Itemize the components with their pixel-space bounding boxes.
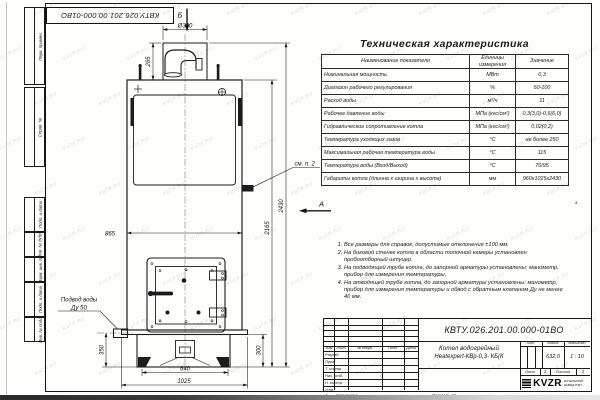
tb-row-nkontr: Н. контр. [325, 379, 348, 386]
tb-sheets-value: 2 [576, 368, 590, 375]
tb-lit-label: Лит. [520, 341, 542, 346]
table-cell: Расход воды [322, 95, 470, 108]
tb-scale-value: 1 : 10 [564, 346, 590, 368]
table-cell: 115 [516, 147, 569, 160]
tb-row-nachotd: Нач. отд. [325, 372, 348, 379]
callout-water-supply-2: Ду 50 [70, 306, 87, 312]
table-cell: 11 [516, 95, 569, 108]
kvzr-logo-text: KVZR [533, 378, 562, 389]
tb-row-prov: Пров. [325, 358, 348, 365]
dim-body-height: 2165 [265, 221, 271, 236]
table-cell: мм [470, 173, 516, 186]
table-cell: 0,3(3,0)-0,6(6,0) [516, 108, 569, 121]
kvzr-logo-subtext-2: ЗАВОД РЭП [564, 384, 590, 388]
table-cell: Рабочее давление воды [322, 108, 470, 121]
table-cell: Диапазон рабочего регулирования [322, 82, 470, 95]
kvzr-logo-icon [522, 379, 531, 388]
table-cell: 0,02(0,2) [516, 121, 569, 134]
tb-sheet-value: 1 [540, 368, 550, 375]
table-cell: Гидравлическое сопротивление котла [322, 121, 470, 134]
table-cell: Номинальная мощность [322, 69, 470, 82]
table-cell: м³/ч [470, 95, 516, 108]
table-cell: 50-100 [516, 82, 569, 95]
tb-product-name-2: Heatexpert-КВр-0,3- КБ(К [420, 353, 518, 361]
table-cell: Максимальная рабочая температура воды [322, 147, 470, 160]
tb-hdr-podp: Подп. [382, 346, 404, 351]
dim-chimney-diameter: Ø300 [177, 24, 193, 30]
table-cell: Габариты котла (длинна х ширина х высота… [322, 173, 470, 186]
table-cell: 0,3 [516, 69, 569, 82]
table-header: Единицы измерения [470, 55, 516, 69]
tb-row-razrab: Разраб. [325, 351, 348, 358]
table-row: Максимальная рабочая температура воды°С1… [322, 147, 569, 160]
table-cell: °С [470, 160, 516, 173]
dim-body-width: 865 [105, 231, 116, 237]
view-arrows: Б А [178, 9, 332, 214]
tech-table: Наименование показателя Единицы измерени… [321, 54, 569, 186]
dim-chimney-height: 265 [146, 56, 152, 68]
callout-see-note: см. п. 2 [295, 162, 316, 168]
scan-shadow-band [0, 395, 600, 400]
tb-hdr-ndokum: № докум. [348, 346, 382, 351]
tb-sheets-label: Листов [550, 368, 576, 375]
tech-table-title: Техническая характеристика [321, 38, 568, 50]
dim-base-width: 640 [180, 367, 191, 373]
table-cell: °С [470, 134, 516, 147]
table-cell: МПа (кгс/см²) [470, 108, 516, 121]
table-row: Температура уходящих газов°Сне более 250 [322, 134, 569, 147]
tb-product-name-1: Котел водогрейный [420, 345, 518, 353]
notes-list: Все размеры для справок, допустимые откл… [334, 242, 566, 302]
table-row: Расход водым³/ч11 [322, 95, 569, 108]
view-b-label: Б [178, 11, 183, 20]
table-cell: Температура воды (Вход/Выход) [322, 160, 470, 173]
table-row: Габариты котла (длинна х ширина х высота… [322, 173, 569, 186]
table-row: Рабочее давление водыМПа (кгс/см²)0,3(3,… [322, 108, 569, 121]
tb-row-tkontr: Т. контр. [325, 365, 348, 372]
table-cell: Температура уходящих газов [322, 134, 470, 147]
tech-characteristics: Техническая характеристика Наименование … [321, 38, 568, 186]
table-cell: МВт [470, 69, 516, 82]
table-cell: не более 250 [516, 134, 569, 147]
dim-overall-width: 1025 [177, 379, 191, 385]
table-header: Значение [516, 55, 569, 69]
kvzr-logo-subtext: КОТЕЛЬНЫЙ ЗАВОД РЭП [564, 380, 590, 387]
view-a-label: А [318, 200, 324, 209]
table-row: Диапазон рабочего регулирования%50-100 [322, 82, 569, 95]
note-item: На боковой стенке котла в области топочн… [344, 250, 566, 264]
table-cell: % [470, 82, 516, 95]
boiler-outline [114, 43, 248, 367]
dim-inlet-height: 350 [99, 344, 105, 355]
table-cell: 960х1025х2430 [516, 173, 569, 186]
tb-logo: KVZR КОТЕЛЬНЫЙ ЗАВОД РЭП [520, 375, 592, 392]
table-row: Номинальная мощностьМВт0,3 [322, 69, 569, 82]
table-cell: 70/95 [516, 160, 569, 173]
table-row: Температура воды (Вход/Выход)°С70/95 [322, 160, 569, 173]
note-item: На отводящей трубе котла, до запорной ар… [344, 280, 566, 301]
table-header: Наименование показателя [322, 55, 470, 69]
note-item: Все размеры для справок, допустимые откл… [344, 242, 566, 249]
title-block: КВТУ.026.201.00.000-01ВО Изм Лист № доку… [323, 318, 592, 392]
callout-water-supply-1: Подвод воды [61, 298, 98, 304]
note-item: На подводящей трубе котла, до запорной а… [344, 265, 566, 279]
zone-letter-right: а [575, 200, 577, 205]
dim-base-height: 300 [256, 345, 262, 356]
table-cell: °С [470, 147, 516, 160]
dim-overall-height: 2430 [279, 199, 285, 214]
tb-hdr-data: Дата [404, 346, 418, 351]
callout-labels: см. п. 2 Подвод воды Ду 50 [61, 162, 316, 312]
table-cell: МПа (кгс/см²) [470, 121, 516, 134]
tb-sheet-label: Лист [520, 368, 540, 375]
tb-doc-number: КВТУ.026.201.00.000-01ВО [418, 319, 590, 341]
table-row: Гидравлическое сопротивление котлаМПа (к… [322, 121, 569, 134]
tb-mass-value: 632,0 [542, 346, 564, 368]
drawing-sheet: KVZR.RUKVZR.RUKVZR.RUKVZR.RUKVZR.RUKVZR.… [0, 0, 600, 400]
